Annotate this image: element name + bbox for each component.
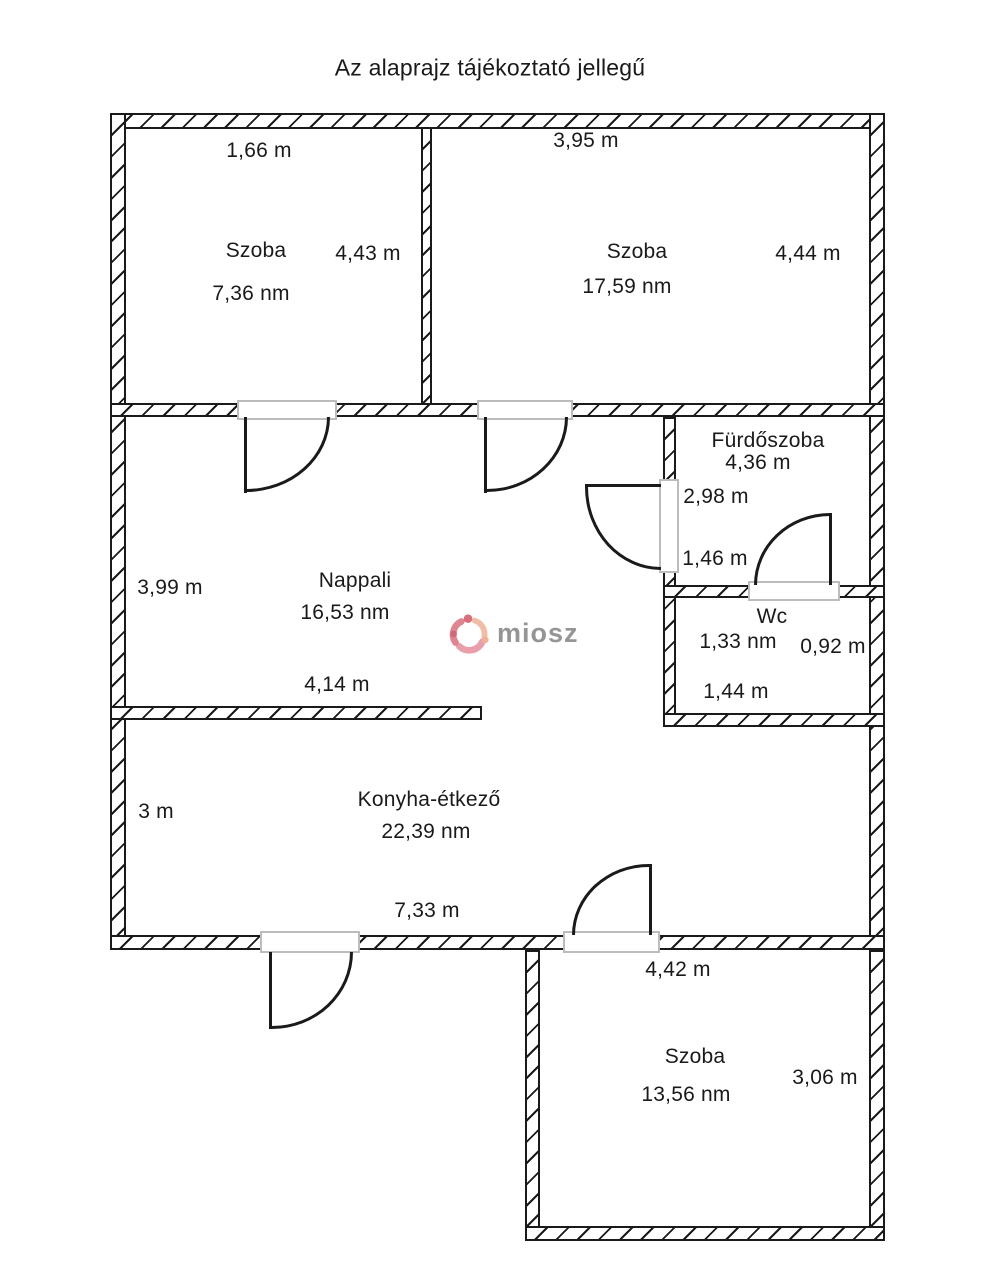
door-sill [260,931,360,953]
label-szoba2-height: 4,44 m [775,242,840,266]
label-szoba3-top-dim: 4,42 m [645,958,710,982]
wall-bottom-main [110,935,885,950]
wall-wc-bottom [663,713,885,727]
label-szoba1-width: 1,66 m [226,139,291,163]
plan-disclaimer-title: Az alaprajz tájékoztató jellegű [335,55,646,82]
label-furdoszoba-name: Fürdőszoba [712,429,825,453]
label-wc-area: 1,33 nm [699,630,776,654]
wall-right-exterior [869,113,885,950]
wall-top-exterior [110,113,885,129]
door-leaf [649,864,652,935]
door-arc [585,487,661,570]
label-szoba2-area: 17,59 nm [582,275,671,299]
label-nappali-bottom-dim: 4,14 m [304,673,369,697]
label-furdoszoba-area: 4,36 m [725,451,790,475]
label-wc-dim1: 0,92 m [800,635,865,659]
label-szoba1-name: Szoba [226,239,287,263]
label-furdoszoba-dim2: 1,46 m [682,547,747,571]
label-szoba1-height: 4,43 m [335,242,400,266]
label-szoba2-width: 3,95 m [553,129,618,153]
floor-plan: Az alaprajz tájékoztató jellegű 1,66 m S… [0,0,1000,1279]
label-wc-dim2: 1,44 m [703,680,768,704]
label-szoba3-right-dim: 3,06 m [792,1066,857,1090]
door-arc [246,417,330,492]
label-furdoszoba-dim1: 2,98 m [683,485,748,509]
label-nappali-name: Nappali [319,569,392,593]
watermark-text: miosz [497,618,579,649]
label-konyha-left-dim: 3 m [138,800,174,824]
door-sill [659,479,679,573]
label-szoba3-name: Szoba [665,1045,726,1069]
door-arc [272,952,353,1029]
miosz-logo-icon [446,610,492,656]
wall-nappali-bottom-partial [110,706,482,720]
wall-left-exterior [110,113,126,950]
label-wc-name: Wc [757,605,788,629]
label-konyha-name: Konyha-étkező [358,788,501,812]
wall-divider-top-rooms [421,127,432,405]
door-arc [754,513,830,585]
label-szoba1-area: 7,36 nm [212,282,289,306]
label-konyha-area: 22,39 nm [381,820,470,844]
door-arc [487,417,568,492]
watermark: miosz [446,610,579,656]
label-nappali-left-dim: 3,99 m [137,576,202,600]
label-nappali-area: 16,53 nm [300,601,389,625]
label-szoba3-area: 13,56 nm [641,1083,730,1107]
wall-szoba3-right [869,950,885,1241]
wall-szoba3-left [525,950,540,1241]
door-arc [572,864,649,935]
wall-szoba3-bottom [525,1226,885,1241]
label-konyha-bottom-dim: 7,33 m [394,899,459,923]
label-szoba2-name: Szoba [607,240,668,264]
